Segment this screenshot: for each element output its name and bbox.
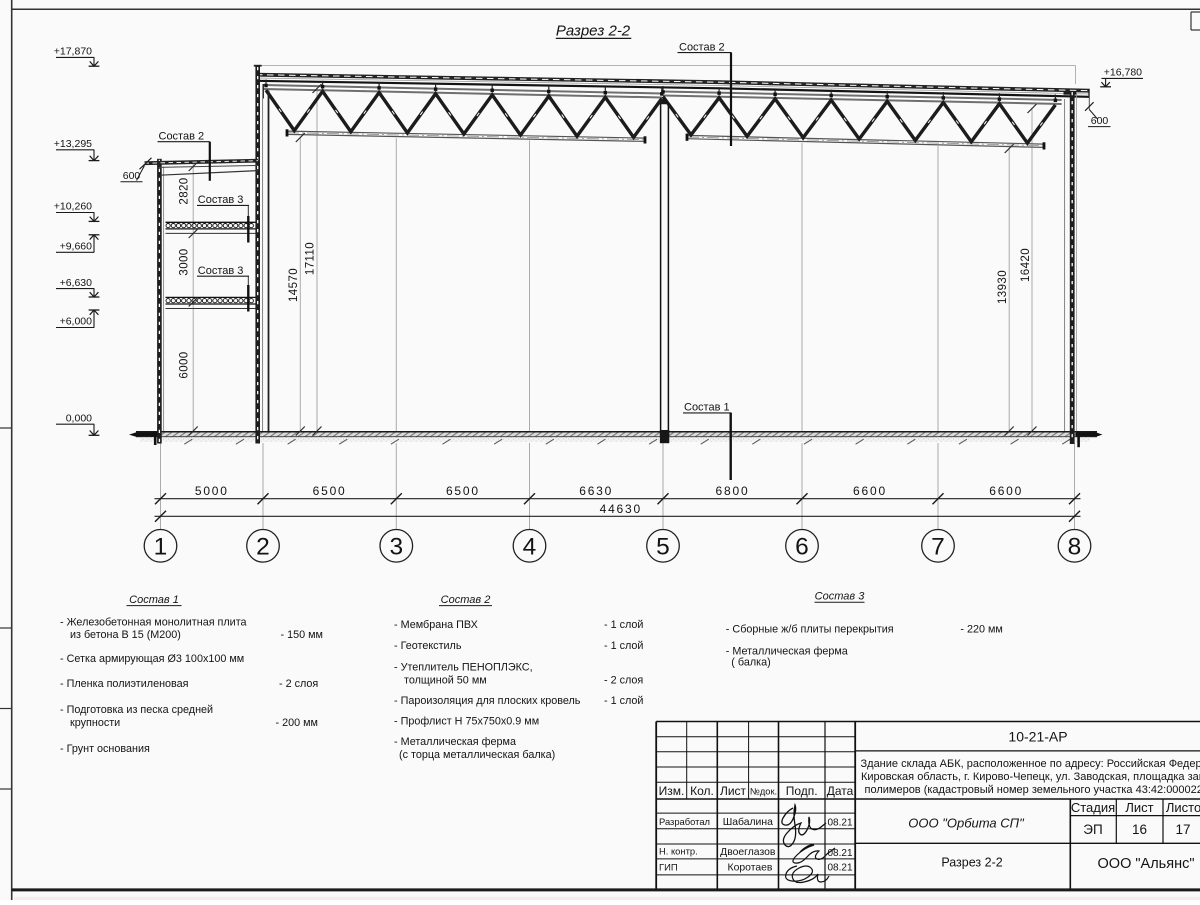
svg-text:Стадия: Стадия (1071, 800, 1115, 815)
svg-text:5: 5 (656, 534, 670, 561)
svg-text:- 1 слой: - 1 слой (604, 619, 643, 631)
svg-text:16: 16 (1132, 822, 1147, 837)
svg-text:(с торца металлическая балка): (с торца металлическая балка) (399, 749, 555, 761)
svg-text:ГИП: ГИП (659, 862, 678, 873)
svg-text:Н. контр.: Н. контр. (659, 846, 698, 857)
svg-text:6600: 6600 (853, 484, 887, 498)
svg-text:Состав 2: Состав 2 (441, 594, 491, 606)
svg-text:- Профлист Н 75х750х0.9 мм: - Профлист Н 75х750х0.9 мм (394, 716, 539, 728)
svg-text:Дата: Дата (827, 784, 854, 798)
svg-text:600: 600 (1091, 115, 1109, 127)
svg-text:Состав 2: Состав 2 (679, 42, 725, 54)
svg-text:7: 7 (931, 534, 945, 561)
svg-text:крупности: крупности (70, 717, 120, 729)
svg-text:17110: 17110 (305, 242, 317, 275)
svg-text:3: 3 (389, 534, 403, 561)
svg-text:- Утеплитель ПЕНОПЛЭКС,: - Утеплитель ПЕНОПЛЭКС, (394, 662, 533, 674)
svg-text:Лист: Лист (1125, 800, 1153, 815)
svg-text:10-21-АР: 10-21-АР (1008, 729, 1067, 745)
svg-text:+9,660: +9,660 (60, 241, 93, 253)
svg-text:Состав 2: Состав 2 (159, 131, 205, 143)
svg-text:- Геотекстиль: - Геотекстиль (394, 640, 462, 652)
svg-text:ООО "Орбита СП": ООО "Орбита СП" (908, 816, 1025, 831)
svg-text:Состав 3: Состав 3 (198, 265, 244, 277)
svg-text:полимеров (кадастровый номер з: полимеров (кадастровый номер земельного … (865, 784, 1200, 796)
svg-text:Состав 1: Состав 1 (684, 402, 730, 414)
svg-text:- Пароизоляция для плоских кро: - Пароизоляция для плоских кровель (394, 695, 581, 707)
svg-text:Здание склада АБК, расположенн: Здание склада АБК, расположенное по адре… (861, 758, 1200, 770)
svg-text:+6,630: +6,630 (60, 277, 93, 289)
svg-text:6500: 6500 (446, 484, 480, 498)
svg-text:Разрез 2-2: Разрез 2-2 (556, 22, 631, 39)
svg-text:- Металлическая ферма: - Металлическая ферма (726, 645, 848, 657)
svg-text:6800: 6800 (716, 484, 750, 498)
svg-text:2820: 2820 (179, 177, 191, 204)
svg-text:Изм.: Изм. (659, 784, 685, 798)
svg-text:16420: 16420 (1020, 248, 1032, 282)
svg-text:ООО "Альянс": ООО "Альянс" (1098, 856, 1195, 872)
svg-text:Состав 3: Состав 3 (198, 194, 244, 206)
svg-text:3000: 3000 (179, 248, 191, 275)
svg-text:- Подготовка из песка средней: - Подготовка из песка средней (60, 704, 213, 716)
svg-text:08.21: 08.21 (827, 848, 852, 859)
svg-text:8: 8 (1068, 534, 1082, 561)
svg-text:- 150 мм: - 150 мм (281, 629, 323, 641)
svg-text:5000: 5000 (195, 484, 229, 498)
svg-text:- Грунт основания: - Грунт основания (60, 743, 150, 755)
svg-text:- 220 мм: - 220 мм (960, 624, 1002, 636)
svg-text:6630: 6630 (579, 484, 613, 498)
svg-text:Кол.: Кол. (690, 784, 714, 798)
svg-text:из бетона В 15 (М200): из бетона В 15 (М200) (70, 629, 181, 641)
svg-text:Подп.: Подп. (786, 784, 818, 798)
svg-text:- 1 слой: - 1 слой (604, 640, 643, 652)
svg-text:- 2 слоя: - 2 слоя (604, 675, 643, 687)
svg-text:+13,295: +13,295 (54, 138, 92, 150)
svg-text:Коротаев: Коротаев (728, 863, 773, 874)
svg-text:- Сборные ж/б плиты перекрытия: - Сборные ж/б плиты перекрытия (726, 624, 894, 636)
svg-text:+10,260: +10,260 (54, 201, 92, 213)
svg-text:- 1 слой: - 1 слой (604, 695, 643, 707)
svg-text:6: 6 (795, 534, 809, 561)
svg-text:Листов: Листов (1166, 800, 1200, 815)
svg-text:Разрез 2-2: Разрез 2-2 (941, 856, 1002, 870)
svg-text:- Металлическая ферма: - Металлическая ферма (394, 736, 516, 748)
svg-text:+6,000: +6,000 (60, 316, 93, 328)
svg-text:( балка): ( балка) (731, 657, 770, 669)
svg-text:Кировская область, г. Кирово-Ч: Кировская область, г. Кирово-Чепецк, ул.… (861, 771, 1200, 783)
svg-text:ЭП: ЭП (1083, 822, 1102, 837)
svg-text:6600: 6600 (989, 484, 1023, 498)
svg-text:толщиной 50 мм: толщиной 50 мм (404, 675, 487, 687)
svg-text:- Сетка армирующая Ø3 100х100: - Сетка армирующая Ø3 100х100 мм (60, 653, 244, 665)
svg-text:14570: 14570 (288, 268, 300, 302)
svg-text:0,000: 0,000 (66, 412, 92, 424)
svg-text:+16,780: +16,780 (1104, 67, 1142, 79)
svg-text:08.21: 08.21 (827, 863, 852, 874)
svg-text:2: 2 (256, 534, 270, 561)
svg-text:13930: 13930 (997, 270, 1009, 304)
svg-text:- Мембрана ПВХ: - Мембрана ПВХ (394, 619, 478, 631)
svg-text:- Железобетонная монолитная п: - Железобетонная монолитная плита (60, 616, 247, 628)
svg-text:- 2 слоя: - 2 слоя (279, 678, 318, 690)
svg-text:4: 4 (523, 534, 537, 561)
svg-text:1: 1 (154, 534, 168, 561)
svg-text:Разработал: Разработал (659, 816, 710, 827)
svg-text:44630: 44630 (600, 502, 642, 516)
svg-text:Двоеглазов: Двоеглазов (720, 847, 776, 858)
svg-text:№док.: №док. (750, 787, 777, 797)
svg-text:600: 600 (123, 170, 141, 182)
svg-text:6500: 6500 (313, 484, 347, 498)
svg-text:Лист: Лист (720, 784, 747, 798)
svg-text:Состав 1: Состав 1 (129, 594, 179, 606)
svg-text:Шабалина: Шабалина (723, 816, 773, 828)
svg-text:- 200 мм: - 200 мм (276, 717, 318, 729)
svg-text:Состав 3: Состав 3 (815, 591, 866, 603)
svg-text:6000: 6000 (179, 351, 191, 378)
svg-text:- Пленка полиэтиленовая: - Пленка полиэтиленовая (60, 678, 189, 690)
svg-text:08.21: 08.21 (827, 817, 852, 828)
svg-text:+17,870: +17,870 (54, 46, 92, 58)
svg-text:17: 17 (1175, 822, 1190, 837)
